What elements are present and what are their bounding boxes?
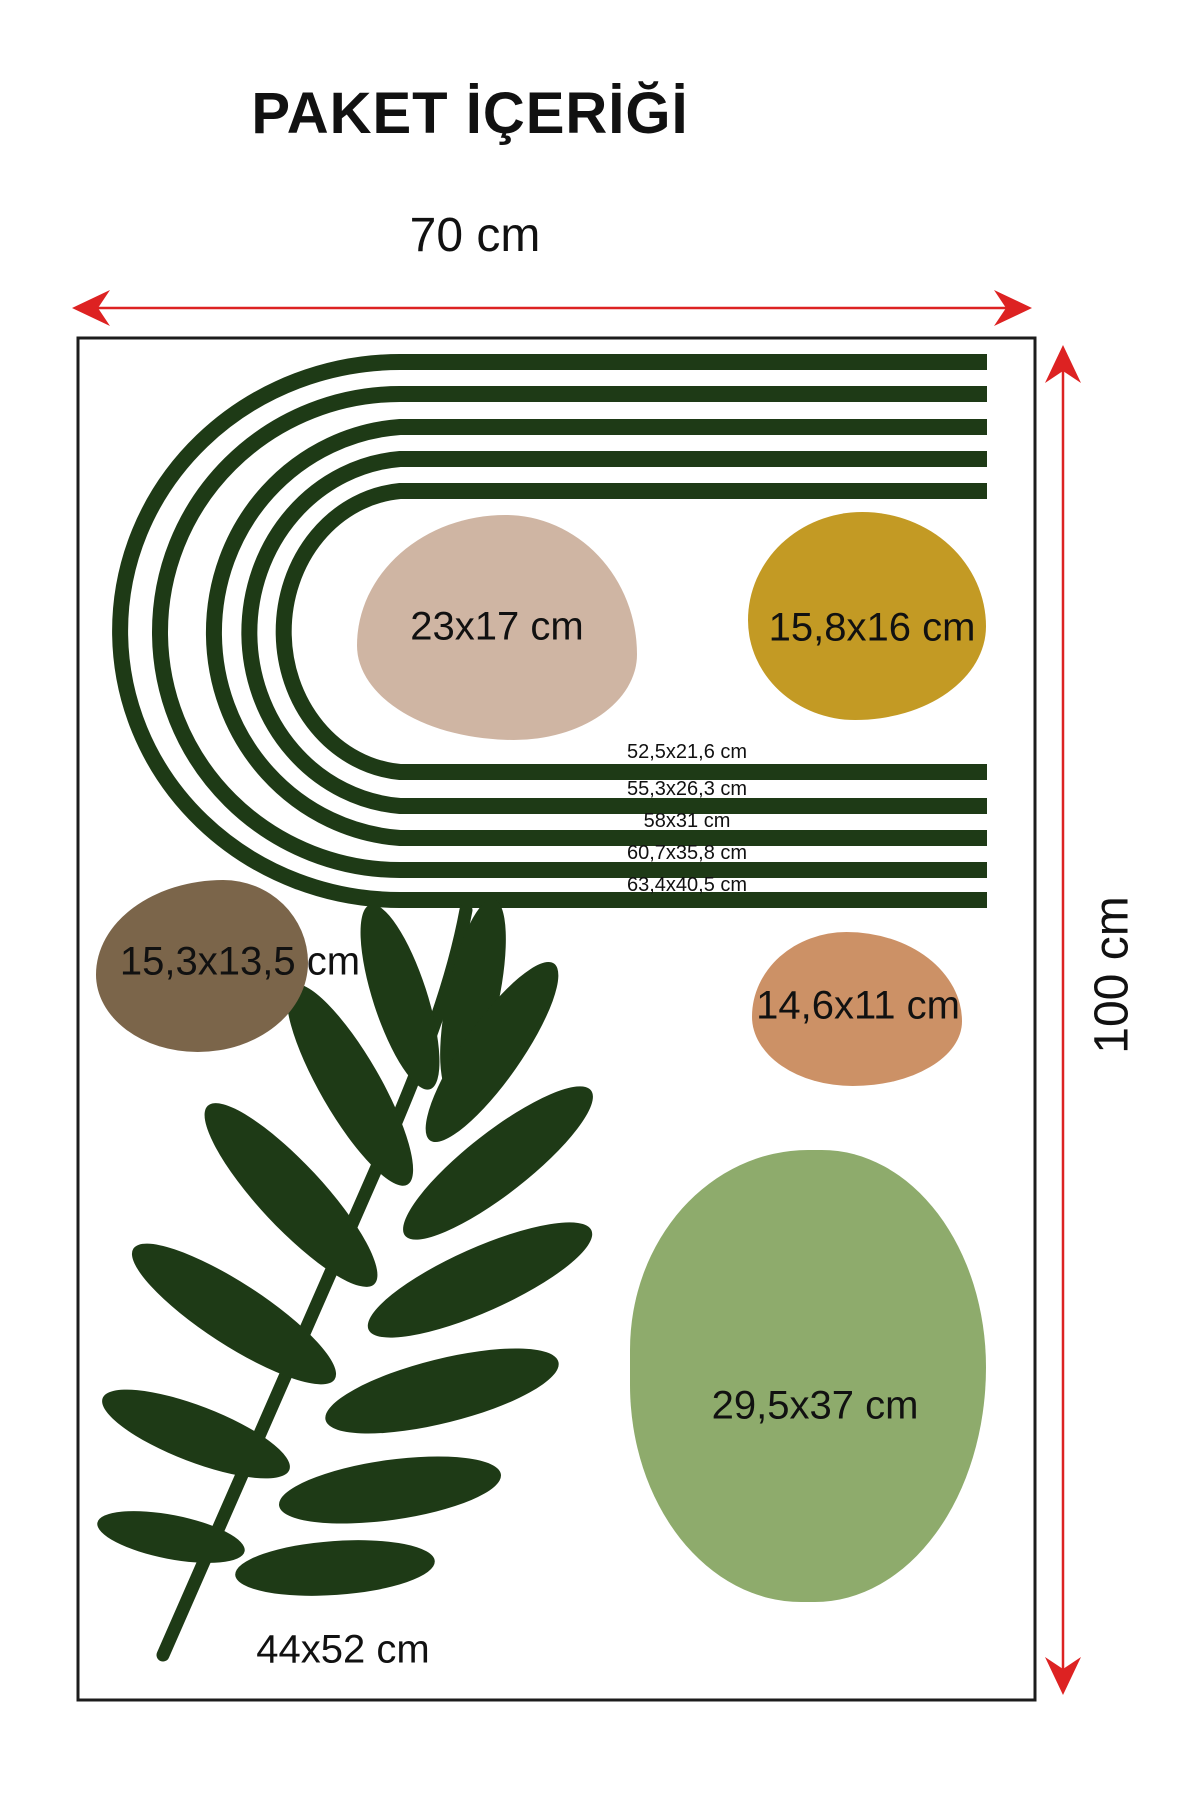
page-title: PAKET İÇERİĞİ <box>70 80 870 147</box>
green-blob-size-label: 29,5x37 cm <box>712 1384 919 1429</box>
rainbow-size-label-4: 60,7x35,8 cm <box>627 843 747 863</box>
rainbow-size-label-2: 55,3x26,3 cm <box>627 779 747 799</box>
rainbow-size-label-3: 58x31 cm <box>644 811 731 831</box>
beige-blob-size-label: 23x17 cm <box>410 605 583 650</box>
rainbow-size-label-1: 52,5x21,6 cm <box>627 742 747 762</box>
height-dimension-arrow <box>1045 345 1081 1695</box>
mustard-blob-size-label: 15,8x16 cm <box>769 606 976 651</box>
height-dimension-label: 100 cm <box>1085 896 1140 1053</box>
leaf-size-label: 44x52 cm <box>256 1628 429 1673</box>
tan-blob-size-label: 14,6x11 cm <box>756 984 960 1029</box>
green-blob-sticker <box>630 1150 986 1602</box>
brown-blob-size-label: 15,3x13,5 cm <box>120 940 360 985</box>
width-dimension-label: 70 cm <box>75 208 875 263</box>
package-contents-diagram: PAKET İÇERİĞİ 70 cm 100 cm 52,5x21,6 cm … <box>0 0 1200 1800</box>
width-dimension-arrow <box>72 290 1032 326</box>
rainbow-size-label-5: 63,4x40,5 cm <box>627 875 747 895</box>
